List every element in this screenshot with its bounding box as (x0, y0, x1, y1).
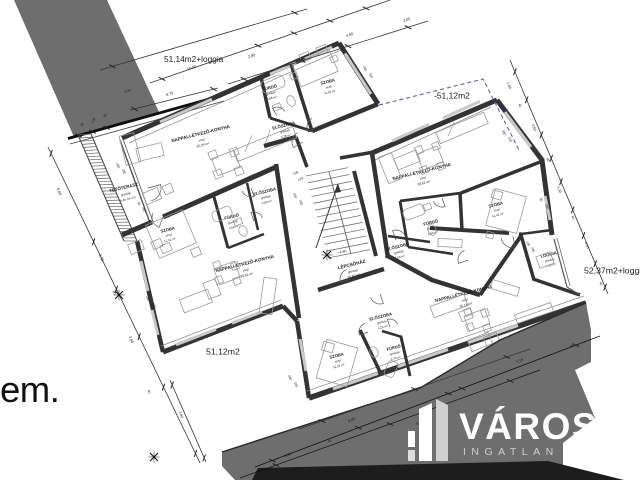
svg-text:51,14m2+loggia: 51,14m2+loggia (164, 54, 224, 64)
svg-text:51,12m2: 51,12m2 (206, 347, 240, 357)
svg-text:52,37m2+loggia: 52,37m2+loggia (584, 266, 640, 276)
svg-text:-51,12m2: -51,12m2 (434, 91, 470, 101)
svg-text:em.: em. (0, 369, 59, 410)
svg-text:INGATLAN: INGATLAN (463, 446, 559, 458)
